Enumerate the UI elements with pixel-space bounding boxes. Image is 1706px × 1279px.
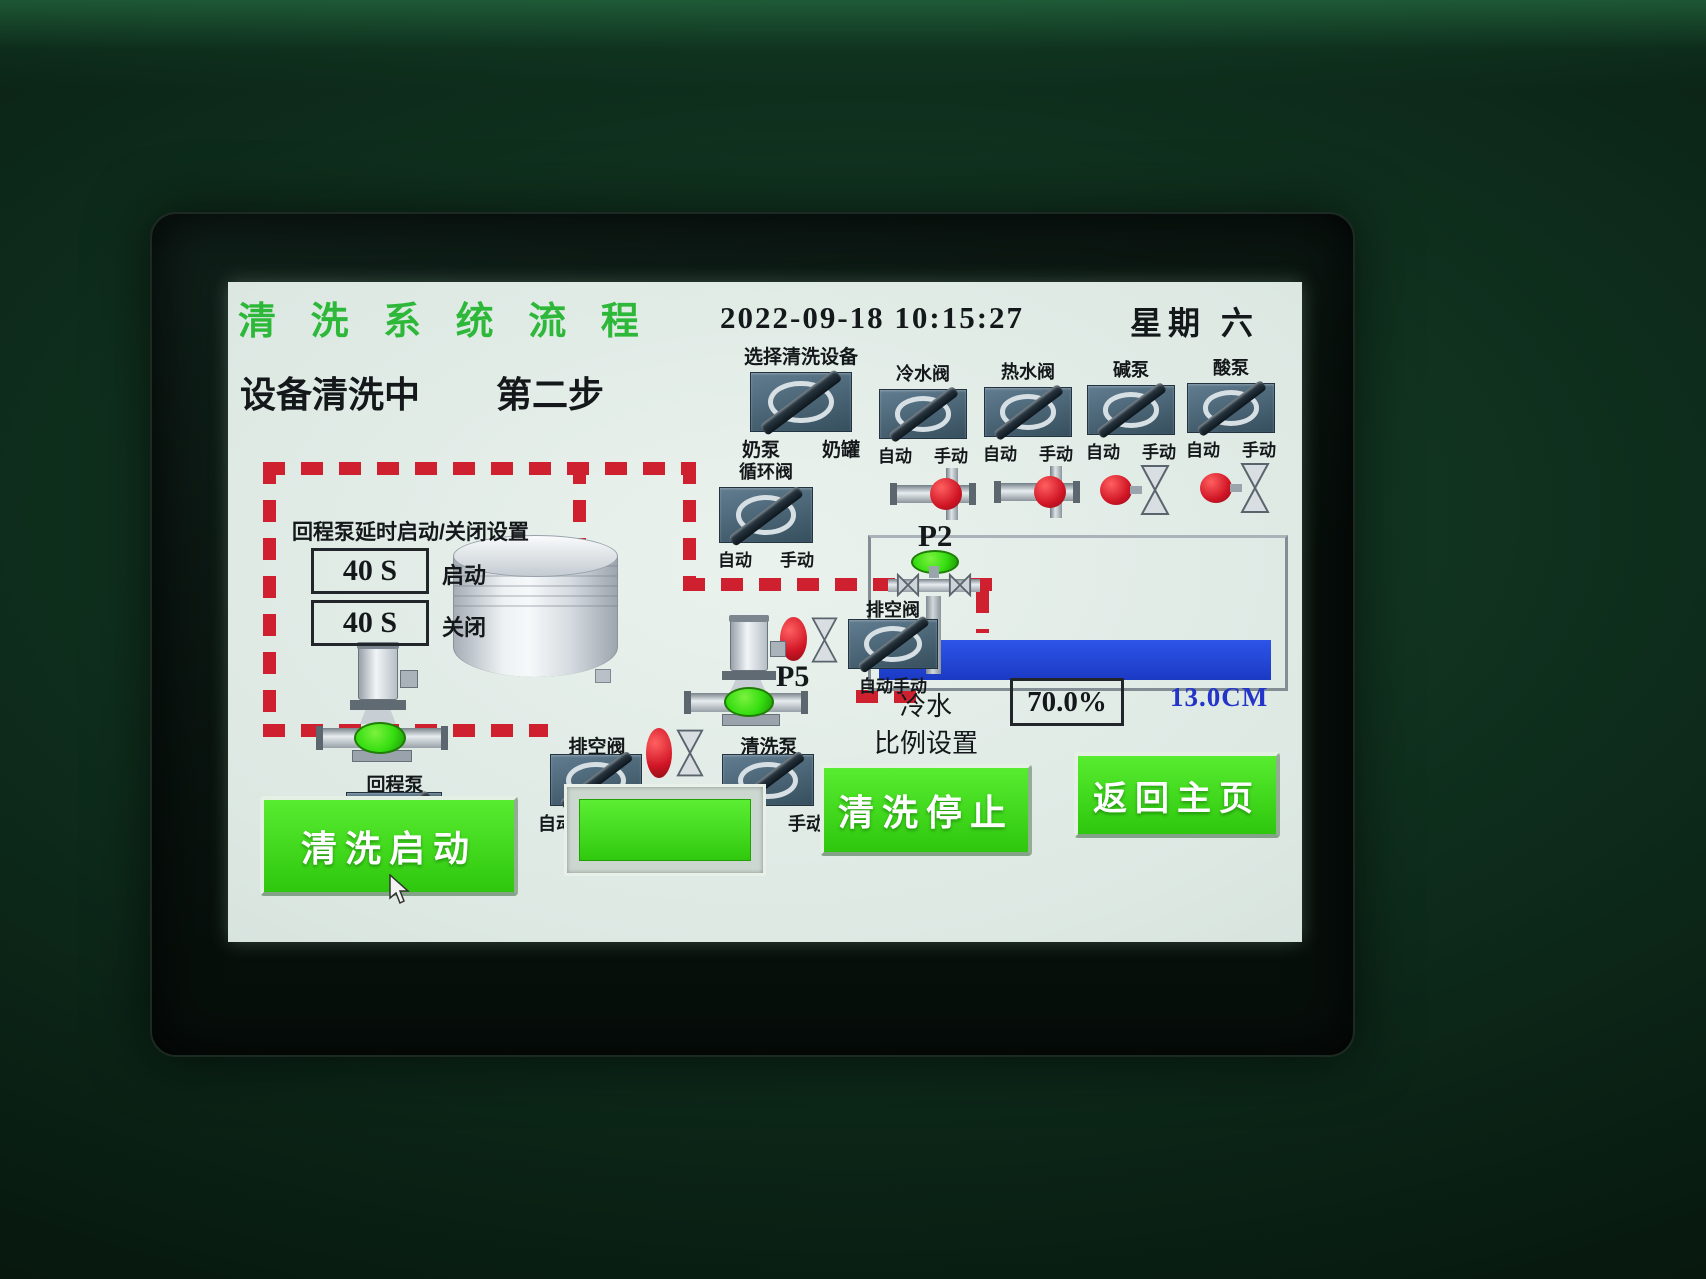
- valve-group-cold-water: 冷水阀 自动 手动: [873, 360, 973, 467]
- device-select-label: 选择清洗设备: [734, 342, 868, 369]
- pipe-fitting-icon: [948, 573, 972, 597]
- auto-label[interactable]: 自动: [983, 440, 1017, 465]
- close-delay-label: 关闭: [442, 610, 486, 642]
- hot-water-valve-icon: [994, 466, 1080, 518]
- clean-start-label: 清洗启动: [301, 820, 477, 872]
- p1-valve-icon: [646, 726, 706, 782]
- auto-label[interactable]: 自动: [1086, 438, 1120, 463]
- start-delay-input[interactable]: 40 S: [311, 548, 429, 594]
- percent-input[interactable]: 70.0%: [1010, 678, 1124, 726]
- valve-group-acid-pump: 酸泵 自动 手动: [1181, 354, 1281, 461]
- cold-water-valve-switch[interactable]: [879, 389, 967, 439]
- close-delay-input[interactable]: 40 S: [311, 600, 429, 646]
- bowtie-icon: [1140, 464, 1170, 516]
- manual-label[interactable]: 手动: [934, 442, 968, 467]
- pipe-top: [263, 462, 693, 475]
- hot-water-valve-switch[interactable]: [984, 387, 1072, 437]
- cold-water-valve-icon: [890, 468, 976, 520]
- hmi-screen: 清 洗 系 统 流 程 2022-09-18 10:15:27 星期 六 设备清…: [228, 282, 1302, 942]
- weekday-display: 星期 六: [1130, 298, 1259, 344]
- start-delay-value: 40 S: [343, 554, 397, 588]
- timer-panel-title: 回程泵延时启动/关闭设置: [292, 516, 529, 546]
- status-line: 设备清洗中 第二步: [240, 366, 604, 418]
- cold-water-valve-label: 冷水阀: [873, 360, 973, 386]
- hot-water-valve-label: 热水阀: [978, 358, 1078, 384]
- bowtie-icon: [811, 614, 838, 666]
- acid-pump-label: 酸泵: [1181, 354, 1281, 380]
- manual-label[interactable]: 手动: [1242, 436, 1276, 461]
- alkali-pump-switch[interactable]: [1087, 385, 1175, 435]
- auto-label[interactable]: 自动: [1186, 436, 1220, 461]
- auto-label[interactable]: 自动: [878, 442, 912, 467]
- cold-water-line1: 冷水: [864, 686, 988, 723]
- manual-label[interactable]: 手动: [1039, 440, 1073, 465]
- manual-label[interactable]: 手动: [780, 546, 814, 571]
- page-title: 清 洗 系 统 流 程: [238, 290, 651, 345]
- pipe-tank-inlet: [573, 462, 586, 542]
- alkali-pump-label: 碱泵: [1081, 356, 1181, 382]
- manual-label[interactable]: 手动: [788, 810, 824, 836]
- status-indicator-fill: [579, 799, 751, 861]
- cold-water-caption: 冷水 比例设置: [864, 686, 988, 760]
- status-step: 第二步: [496, 374, 604, 415]
- circulation-valve-group: 循环阀 自动 手动: [710, 458, 822, 571]
- status-indicator-panel: [564, 784, 766, 876]
- circulation-valve-label: 循环阀: [710, 458, 822, 484]
- return-home-button[interactable]: 返回主页: [1074, 752, 1280, 838]
- auto-label[interactable]: 自动: [718, 546, 752, 571]
- return-home-label: 返回主页: [1093, 771, 1261, 820]
- valve-group-alkali-pump: 碱泵 自动 手动: [1081, 356, 1181, 463]
- clean-stop-label: 清洗停止: [838, 784, 1014, 836]
- manual-label[interactable]: 手动: [1142, 438, 1176, 463]
- cold-water-line2: 比例设置: [864, 723, 988, 760]
- pipe-to-junction: [683, 578, 898, 591]
- pipe-fitting-icon: [896, 573, 920, 597]
- return-pump-run-indicator: [354, 722, 406, 754]
- water-level-value: 13.0CM: [1170, 682, 1268, 713]
- option-milk-tank: 奶罐: [822, 435, 860, 462]
- device-select-group: 选择清洗设备 奶泵 奶罐: [734, 342, 868, 462]
- mouse-cursor-icon: [388, 874, 414, 906]
- p2-pipe-junction: [888, 572, 980, 598]
- acid-valve-icon: [1200, 462, 1284, 514]
- point-p5-label: P5: [776, 660, 809, 694]
- datetime-display: 2022-09-18 10:15:27: [720, 300, 1024, 336]
- pipe-left: [263, 462, 276, 737]
- valve-group-hot-water: 热水阀 自动 手动: [978, 358, 1078, 465]
- alkali-valve-icon: [1100, 464, 1184, 516]
- close-delay-value: 40 S: [343, 606, 397, 640]
- bowtie-icon: [676, 726, 704, 780]
- clean-pump-run-indicator: [724, 687, 774, 717]
- point-p2-label: P2: [918, 518, 952, 554]
- circulation-valve-switch[interactable]: [719, 487, 813, 543]
- clean-stop-button[interactable]: 清洗停止: [820, 764, 1032, 856]
- panel-photo: 清 洗 系 统 流 程 2022-09-18 10:15:27 星期 六 设备清…: [0, 0, 1706, 1279]
- drain-valve-right-switch[interactable]: [848, 619, 938, 669]
- tank-outlet: [595, 669, 611, 683]
- pipe-mid-down: [683, 462, 696, 590]
- percent-value: 70.0%: [1027, 686, 1107, 719]
- bowtie-icon: [1240, 462, 1270, 514]
- status-text: 设备清洗中: [240, 374, 420, 415]
- acid-pump-switch[interactable]: [1187, 383, 1275, 433]
- return-pump-icon: [316, 640, 448, 768]
- device-select-switch[interactable]: [750, 372, 852, 432]
- start-delay-label: 启动: [442, 558, 486, 590]
